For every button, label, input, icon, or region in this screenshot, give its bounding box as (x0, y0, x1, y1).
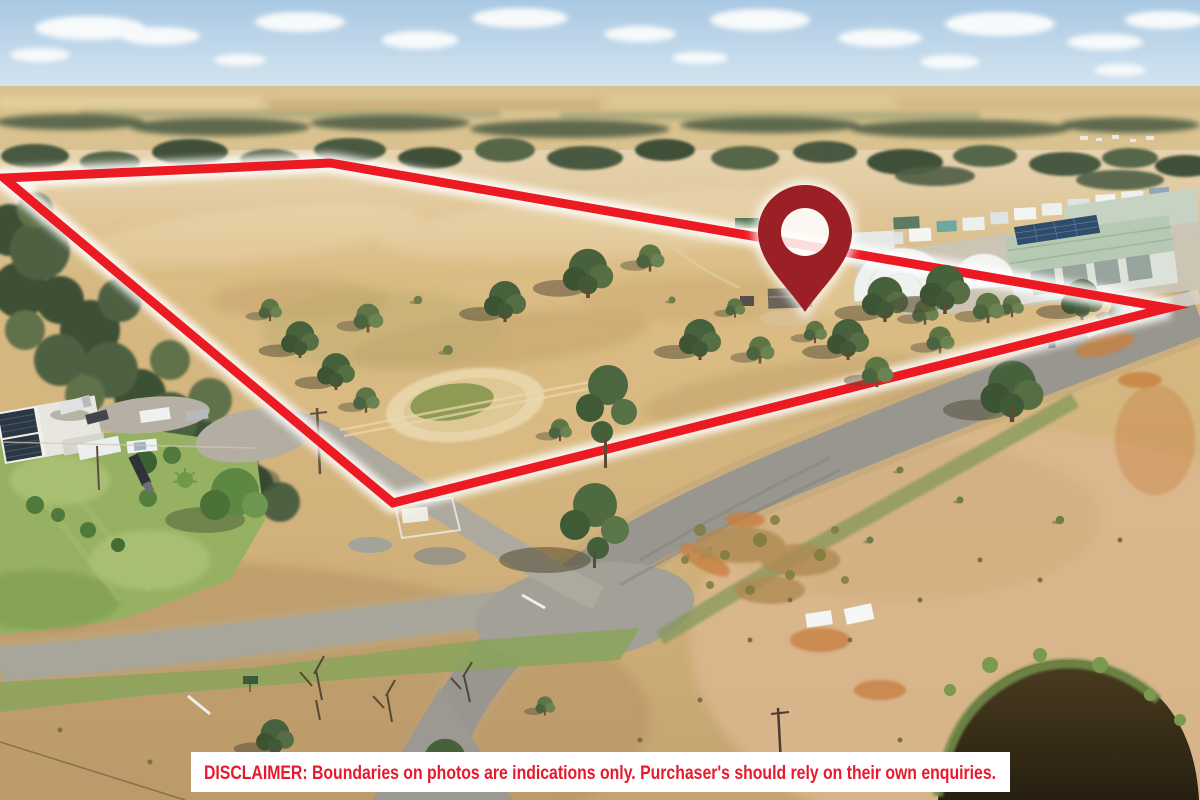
photo-canvas: DISCLAIMER: Boundaries on photos are ind… (0, 0, 1200, 800)
sky (0, 0, 1200, 96)
disclaimer-banner: DISCLAIMER: Boundaries on photos are ind… (191, 752, 1010, 792)
aerial-property-photo: DISCLAIMER: Boundaries on photos are ind… (0, 0, 1200, 800)
disclaimer-text: DISCLAIMER: Boundaries on photos are ind… (204, 762, 996, 784)
road-sign (243, 676, 258, 684)
